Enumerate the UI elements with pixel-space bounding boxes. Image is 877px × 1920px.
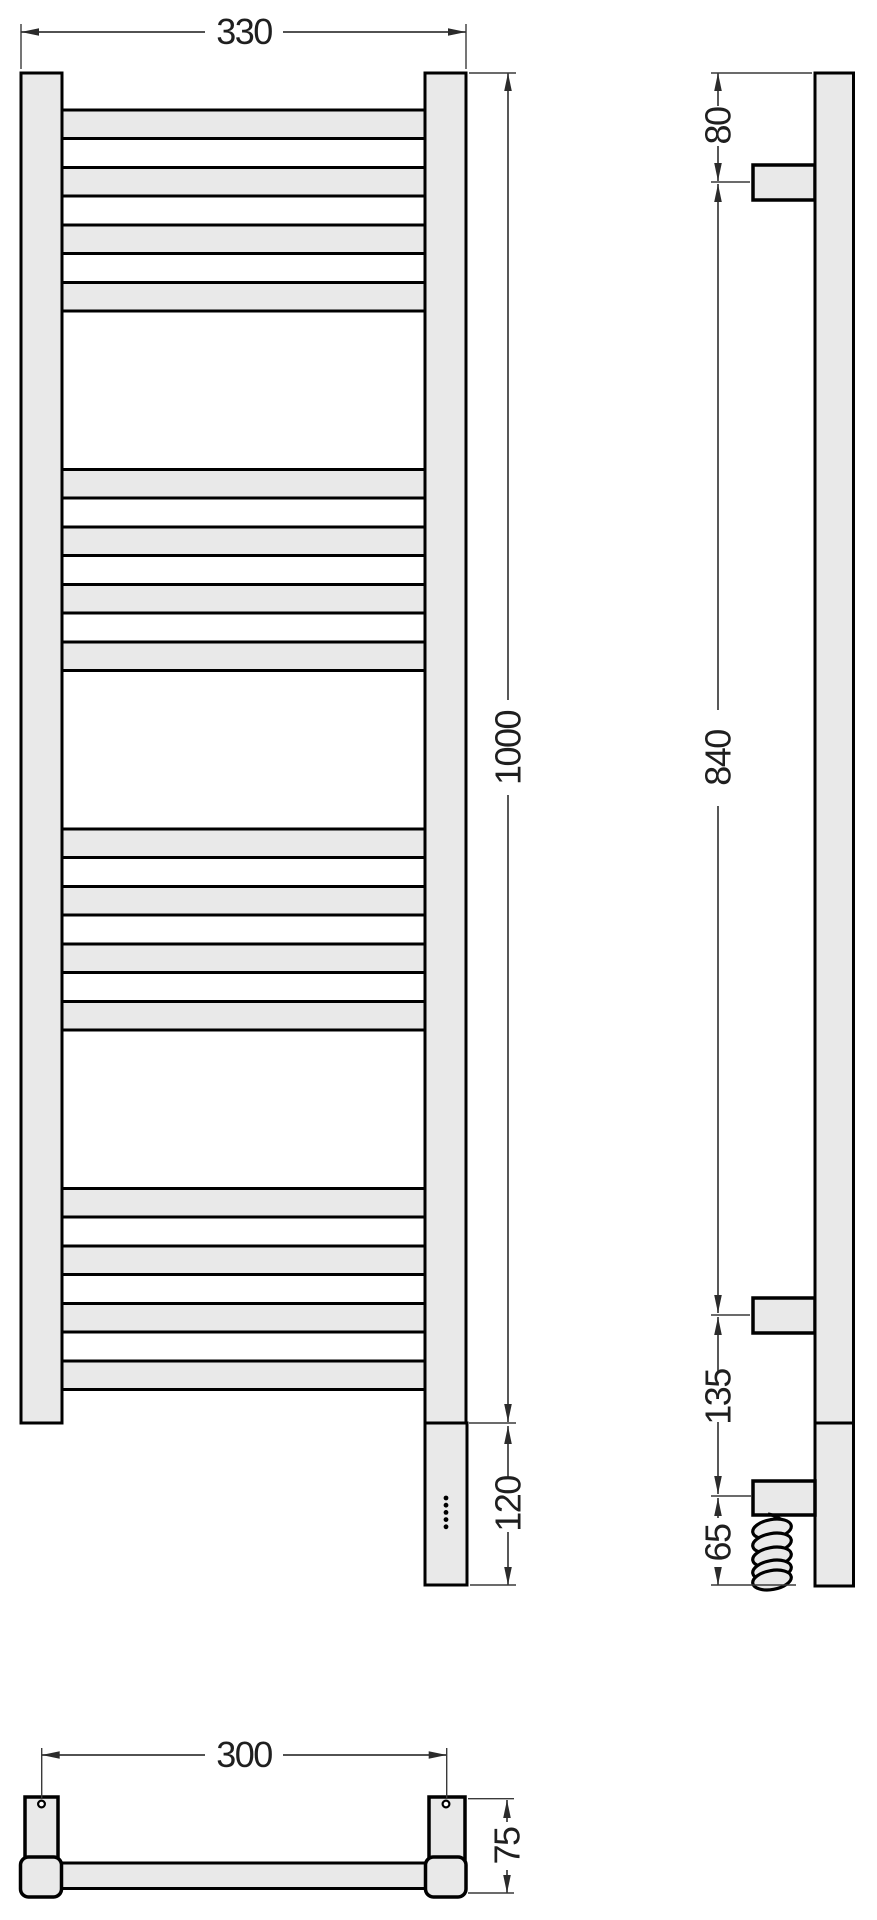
rung (60, 1304, 427, 1333)
dim-front-height: 1000 (469, 73, 529, 1423)
rung (60, 1246, 427, 1275)
front-rungs (60, 110, 427, 1390)
dim-label-top-mount-spacing: 300 (216, 1734, 272, 1775)
cable-terminal (753, 1481, 815, 1515)
arrowhead-left (42, 1751, 60, 1759)
dim-top-depth: 75 (468, 1799, 528, 1893)
side-view: 80 840 135 65 (698, 73, 854, 1593)
top-view-bar (58, 1863, 428, 1889)
arrowhead-down (714, 1476, 722, 1494)
arrowhead-up (714, 1498, 722, 1516)
rung (60, 829, 427, 858)
rung (60, 470, 427, 499)
rung (60, 168, 427, 197)
arrowhead-up (503, 1800, 511, 1818)
lower-wall-bracket (753, 1298, 815, 1333)
dim-label-heater-height: 120 (488, 1476, 529, 1532)
left-screw-hole (38, 1801, 45, 1808)
side-heater-box (815, 1423, 854, 1586)
indicator-dot (444, 1524, 449, 1529)
arrowhead-up (714, 73, 722, 91)
indicator-dot (444, 1510, 449, 1515)
rung (60, 642, 427, 671)
rung (60, 887, 427, 916)
side-rail (815, 73, 854, 1423)
arrowhead-up (714, 1317, 722, 1335)
right-foot (426, 1857, 467, 1897)
rung (60, 110, 427, 139)
dim-top-mount-spacing: 300 (42, 1734, 447, 1799)
upper-wall-bracket (753, 165, 815, 200)
dim-front-width: 330 (21, 11, 466, 69)
arrowhead-down (504, 1567, 512, 1585)
arrowhead-down (714, 163, 722, 181)
arrowhead-up (714, 184, 722, 202)
dim-label-front-height: 1000 (488, 710, 529, 785)
arrowhead-up (504, 1426, 512, 1444)
arrowhead-up (504, 73, 512, 91)
arrowhead-down (714, 1295, 722, 1313)
right-post (425, 73, 466, 1423)
dim-heater-height: 120 (470, 1426, 529, 1585)
left-foot (21, 1857, 62, 1897)
rung (60, 283, 427, 312)
towel-rail-drawing: 330 1000 120 (0, 0, 877, 1920)
arrowhead-right (429, 1751, 447, 1759)
dim-label-side-top-offset: 80 (698, 107, 739, 145)
indicator-dot (444, 1503, 449, 1508)
rung (60, 944, 427, 973)
rung (60, 527, 427, 556)
dim-side-lower-offset: 135 (698, 1317, 753, 1496)
arrowhead-right (448, 28, 466, 36)
rung (60, 1002, 427, 1031)
arrowhead-down (503, 1875, 511, 1893)
rung (60, 1361, 427, 1390)
rung (60, 1189, 427, 1218)
dim-label-side-lower-offset: 135 (698, 1369, 739, 1425)
dim-label-side-bracket-span: 840 (698, 730, 739, 786)
indicator-dot (444, 1517, 449, 1522)
dim-side-bracket-span: 840 (698, 184, 751, 1315)
front-view: 330 1000 120 (21, 11, 529, 1585)
dim-label-top-depth: 75 (487, 1827, 528, 1865)
dim-label-side-cable-drop: 65 (698, 1524, 739, 1562)
rung (60, 225, 427, 254)
left-post (21, 73, 62, 1423)
technical-drawing-canvas: 330 1000 120 (0, 0, 877, 1920)
right-screw-hole (443, 1801, 450, 1808)
arrowhead-down (504, 1404, 512, 1422)
arrowhead-down (714, 1567, 722, 1585)
top-view: 300 75 (21, 1734, 528, 1897)
indicator-dot (444, 1496, 449, 1501)
arrowhead-left (21, 28, 39, 36)
rung (60, 585, 427, 614)
power-cable-coil (751, 1514, 793, 1593)
dim-label-front-width: 330 (216, 11, 272, 52)
